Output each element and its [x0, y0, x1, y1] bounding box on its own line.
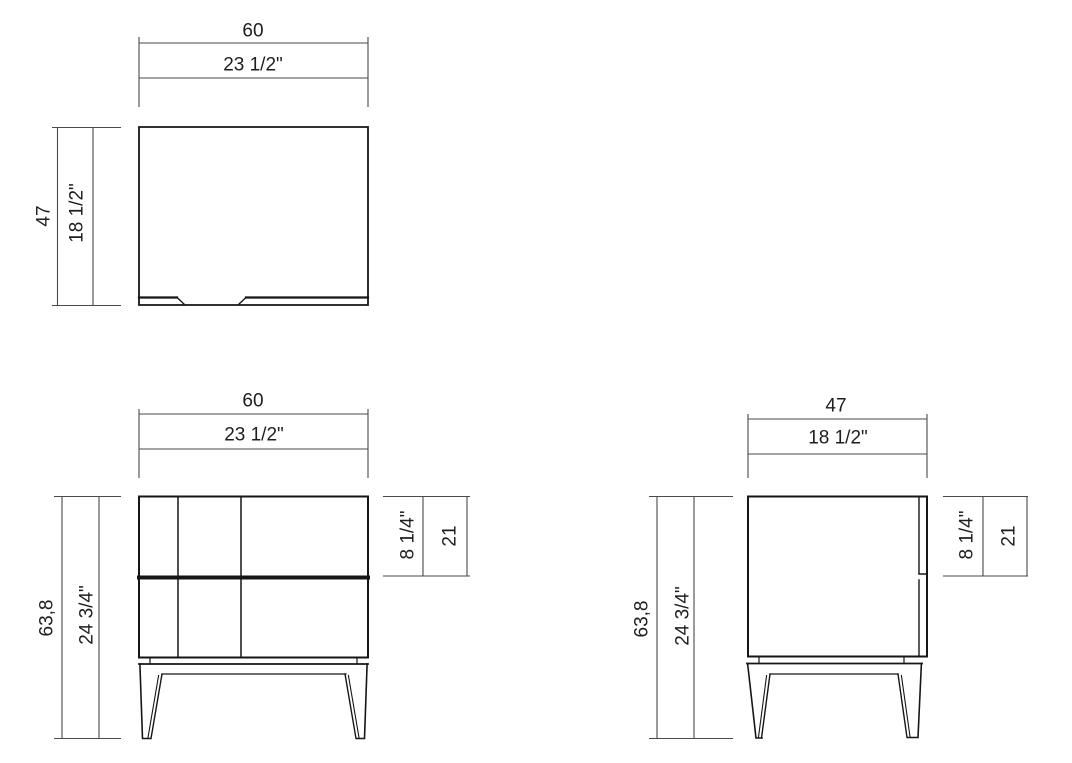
side-view-leg-inner-face-lines: [759, 676, 911, 738]
side-view-depth-cm-label: 47: [825, 396, 846, 417]
side-view-depth-dimension: 47 18 1/2": [748, 396, 927, 479]
front-view-width-cm-label: 60: [242, 391, 263, 412]
front-view: 60 23 1/2" 63,8 24 3/4" 8 1/4" 21: [37, 391, 471, 739]
front-view-top-section-in-label: 8 1/4": [398, 510, 419, 559]
top-view: 60 23 1/2" 47 18 1/2": [34, 21, 369, 306]
front-view-leg-inner-face-lines: [148, 676, 359, 738]
top-view-width-dimension: 60 23 1/2": [139, 21, 368, 108]
top-view-width-in-label: 23 1/2": [223, 55, 283, 76]
technical-drawing-sheet: 60 23 1/2" 47 18 1/2" 60 23 1/2": [0, 0, 1072, 763]
top-view-depth-dimension: 47 18 1/2": [34, 128, 122, 306]
front-view-height-cm-label: 63,8: [37, 600, 58, 637]
side-view: 47 18 1/2" 63,8 24 3/4" 8 1/4" 21: [632, 396, 1029, 739]
furniture-dimension-drawing: 60 23 1/2" 47 18 1/2" 60 23 1/2": [0, 0, 1072, 763]
front-view-height-dimension: 63,8 24 3/4": [37, 497, 122, 739]
front-view-leg-outer-edges: [140, 664, 367, 739]
top-view-outline: [139, 127, 368, 305]
front-view-top-section-dimension: 8 1/4" 21: [383, 497, 470, 577]
side-view-height-in-label: 24 3/4": [673, 586, 694, 646]
side-view-height-cm-label: 63,8: [632, 601, 653, 638]
side-view-leg-outer-edges: [748, 664, 922, 739]
top-view-depth-in-label: 18 1/2": [67, 183, 88, 243]
front-view-height-in-label: 24 3/4": [77, 585, 98, 645]
front-view-width-in-label: 23 1/2": [224, 425, 284, 446]
side-view-leg-inner-edges: [762, 674, 908, 738]
side-view-plinth-inset-lines: [759, 657, 904, 664]
front-view-object: [139, 497, 368, 739]
top-view-object: [139, 127, 368, 305]
side-view-top-section-dimension: 8 1/4" 21: [943, 497, 1028, 577]
side-view-top-section-cm-label: 21: [999, 525, 1020, 546]
top-view-pull-recess-chamfers: [177, 298, 246, 305]
side-view-depth-in-label: 18 1/2": [808, 428, 868, 449]
front-view-leg-inner-edges: [151, 674, 356, 739]
front-view-width-dimension: 60 23 1/2": [139, 391, 368, 479]
side-view-body-outline: [748, 497, 927, 657]
top-view-depth-cm-label: 47: [34, 205, 55, 226]
top-view-width-cm-label: 60: [242, 21, 263, 42]
front-view-top-section-cm-label: 21: [440, 525, 461, 546]
side-view-height-dimension: 63,8 24 3/4": [632, 497, 734, 739]
side-view-object: [747, 497, 927, 739]
side-view-top-section-in-label: 8 1/4": [957, 510, 978, 559]
